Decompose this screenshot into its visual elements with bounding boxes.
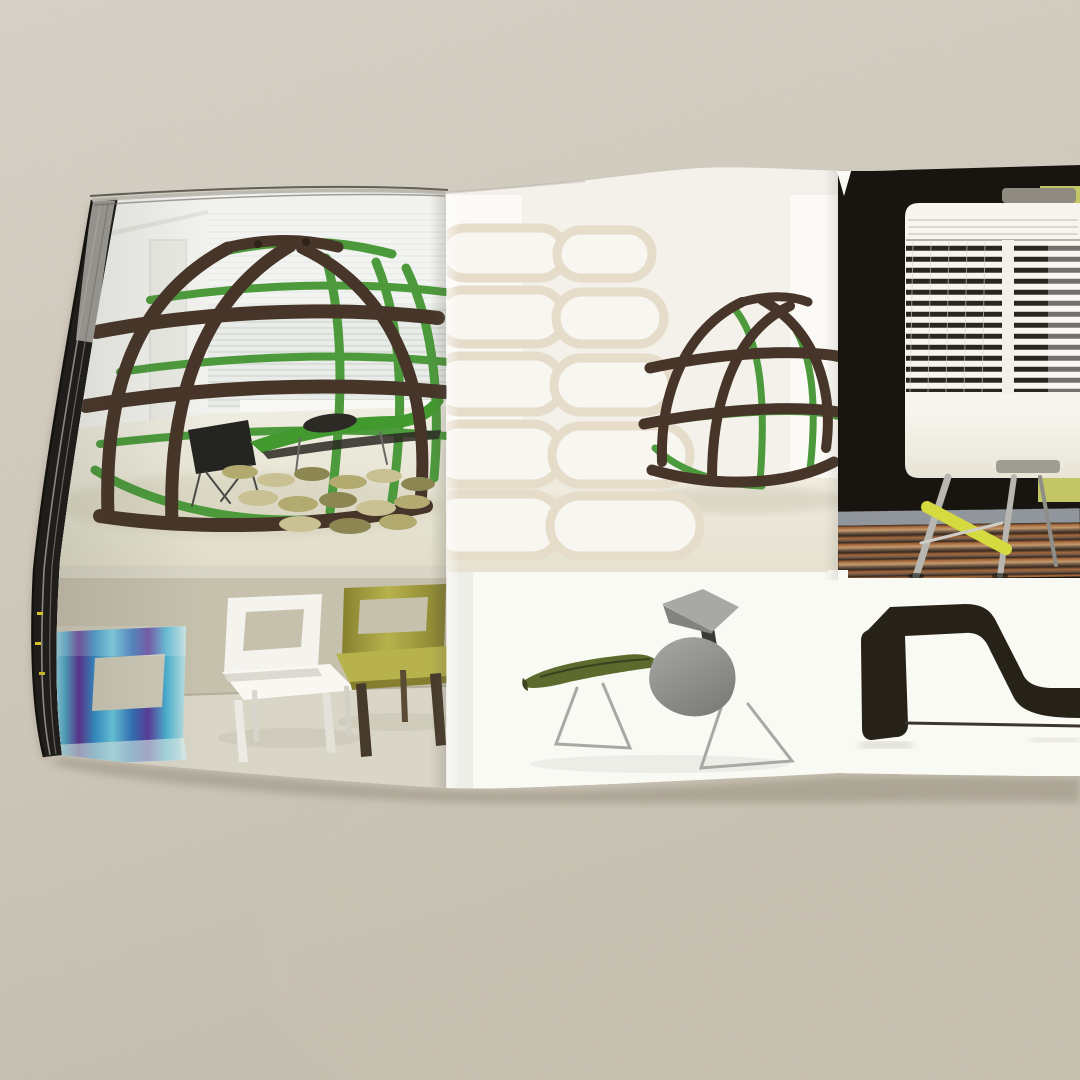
floor-cushion <box>329 518 371 534</box>
page-marker <box>37 612 43 615</box>
louver-right-highlight <box>1048 242 1080 392</box>
floor-cushion <box>257 473 295 487</box>
strap-knot <box>254 240 262 248</box>
book <box>30 160 1080 800</box>
page-marker <box>39 672 45 675</box>
floor-cushion <box>294 467 330 481</box>
white-chair-back-hole <box>243 609 304 651</box>
floor-cushion <box>394 495 430 509</box>
page-marker <box>35 642 41 645</box>
photo-scene <box>0 0 1080 1080</box>
carpet-stripes <box>838 522 1080 579</box>
olive-chair-back-hole <box>358 597 428 634</box>
floor-cushion <box>279 516 321 532</box>
fold2-gap <box>828 570 848 780</box>
bench-foot-shadow <box>860 742 912 748</box>
photo-appliance <box>838 160 1080 580</box>
floor-cushion <box>401 477 435 491</box>
honeycomb-cell <box>556 292 664 344</box>
floor-cushion <box>222 465 258 479</box>
fold-highlight <box>446 160 460 800</box>
louver-divider <box>1002 240 1014 394</box>
floor-cushion <box>238 490 278 506</box>
photo-honeycomb-room <box>428 184 845 572</box>
top-handle <box>1002 188 1076 203</box>
honeycomb-cell <box>550 496 700 556</box>
floor-cushion <box>356 500 396 516</box>
photo-lounge-chair <box>447 572 830 795</box>
brown-strap <box>742 297 808 302</box>
floor-cushion <box>379 514 417 530</box>
honeycomb-cell <box>557 230 652 278</box>
strap-knot <box>302 238 310 246</box>
floor-cushion <box>278 496 318 512</box>
floor-cushion <box>329 475 367 489</box>
lounge-back-shell <box>649 637 735 716</box>
floor-cushion <box>319 492 357 508</box>
fold-shadow-left <box>430 160 446 800</box>
floor-cushion <box>366 469 402 483</box>
photo-black-bench <box>846 578 1080 795</box>
fold2-shadow <box>824 160 838 580</box>
bottom-handle <box>996 460 1060 473</box>
